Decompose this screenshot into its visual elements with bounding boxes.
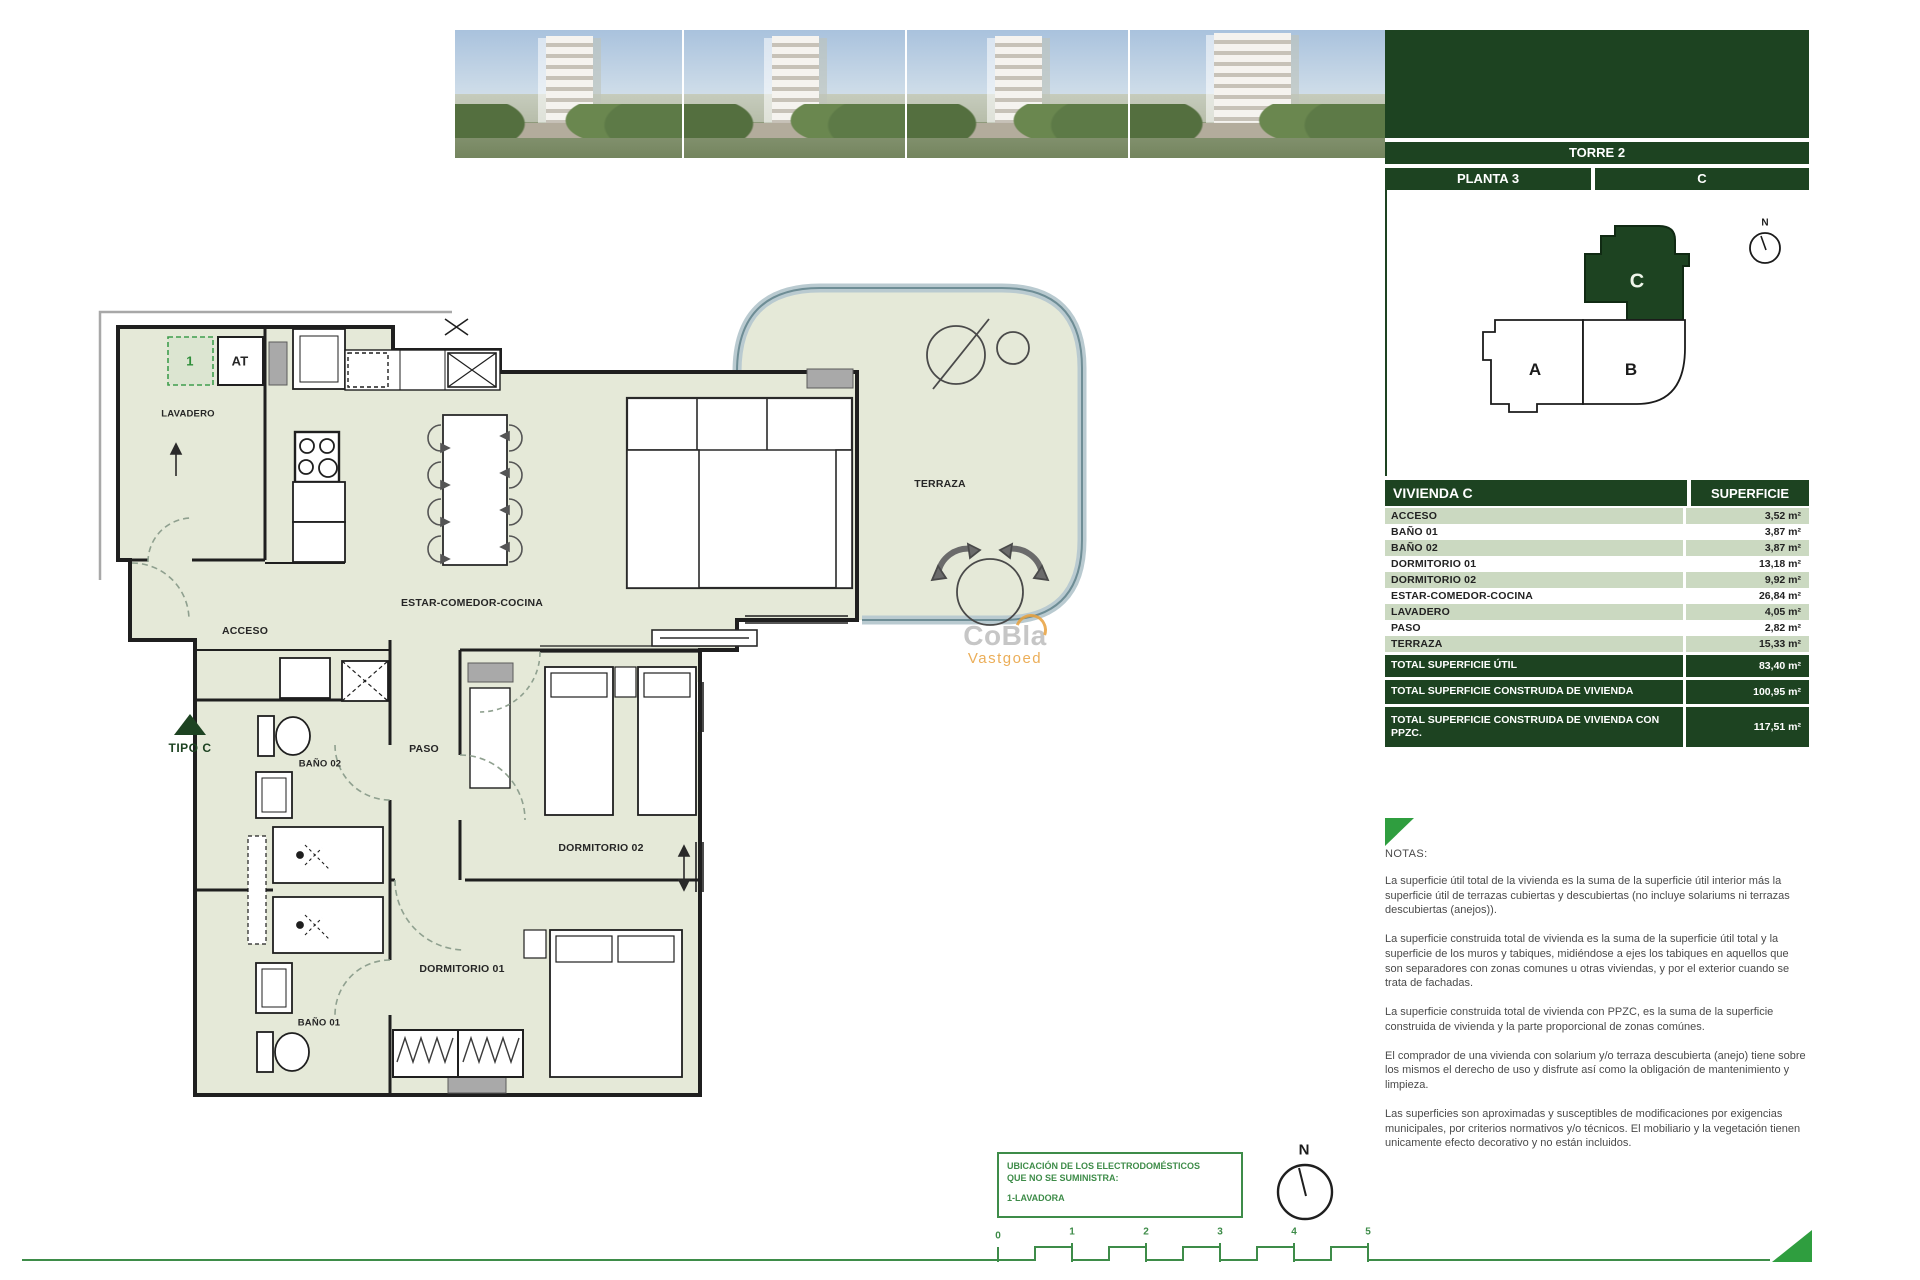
notes-paragraph: Las superficies son aproximadas y suscep… <box>1385 1107 1809 1151</box>
render-photo-3 <box>907 30 1128 158</box>
room-label-paso: PASO <box>409 743 439 755</box>
tower-bar: TORRE 2 <box>1385 142 1809 164</box>
floor-label: PLANTA 3 <box>1457 171 1519 186</box>
keyplan-north-label: N <box>1761 218 1768 229</box>
unit-label: C <box>1697 171 1706 186</box>
unit-bar: C <box>1595 168 1809 190</box>
notes-paragraph: El comprador de una vivienda con solariu… <box>1385 1049 1809 1093</box>
table-row: PASO2,82 m² <box>1385 620 1809 636</box>
scale-tick-label: 2 <box>1143 1227 1149 1238</box>
legend-line1: UBICACIÓN DE LOS ELECTRODOMÉSTICOS QUE N… <box>1007 1161 1217 1184</box>
surface-table-header: VIVIENDA C SUPERFICIE <box>1385 480 1809 506</box>
table-row: BAÑO 023,87 m² <box>1385 540 1809 556</box>
keyplan-box: C A B N <box>1385 190 1811 476</box>
room-label-dorm02: DORMITORIO 02 <box>558 842 643 854</box>
room-label-estar: ESTAR-COMEDOR-COCINA <box>401 597 543 609</box>
tv-bench <box>652 630 757 646</box>
notes-paragraph: La superficie útil total de la vivienda … <box>1385 874 1809 918</box>
dining-table <box>443 415 507 565</box>
room-label-dorm01: DORMITORIO 01 <box>419 963 504 975</box>
table-total-row: TOTAL SUPERFICIE CONSTRUIDA DE VIVIENDA … <box>1385 707 1809 747</box>
scale-tick-label: 1 <box>1069 1227 1075 1238</box>
legend-line2: 1-LAVADORA <box>1007 1193 1233 1203</box>
scale-tick-label: 4 <box>1291 1227 1297 1238</box>
floorplan-sheet: TORRE 2 PLANTA 3 C C A B N VIVIENDA C SU… <box>0 0 1920 1280</box>
washer-number-label: 1 <box>186 354 193 369</box>
keyplan-letter-a: A <box>1529 360 1541 380</box>
table-row: ESTAR-COMEDOR-COCINA26,84 m² <box>1385 588 1809 604</box>
scale-tick-label: 3 <box>1217 1227 1223 1238</box>
scale-tick-label: 5 <box>1365 1227 1371 1238</box>
room-label-terraza: TERRAZA <box>914 478 966 490</box>
table-row: DORMITORIO 0113,18 m² <box>1385 556 1809 572</box>
floor-bar: PLANTA 3 <box>1385 168 1591 190</box>
notes-title: NOTAS: <box>1385 848 1809 860</box>
plan-north-label: N <box>1299 1142 1310 1159</box>
watermark-line2: Vastgoed <box>935 650 1075 667</box>
sofa <box>627 398 852 588</box>
table-header-name: VIVIENDA C <box>1385 480 1687 506</box>
surface-table: VIVIENDA C SUPERFICIE ACCESO3,52 m² BAÑO… <box>1385 480 1809 747</box>
at-label: AT <box>232 354 249 369</box>
notes-section: NOTAS: La superficie útil total de la vi… <box>1385 848 1809 1151</box>
developer-watermark: CoBla Vastgoed <box>935 620 1075 667</box>
table-total-row: TOTAL SUPERFICIE CONSTRUIDA DE VIVIENDA … <box>1385 680 1809 704</box>
notes-triangle <box>1385 818 1414 846</box>
tipo-c-label: TIPO C <box>168 741 211 755</box>
table-row: DORMITORIO 029,92 m² <box>1385 572 1809 588</box>
vent-x-icon <box>445 319 468 335</box>
wardrobe <box>393 1030 523 1077</box>
table-row: TERRAZA15,33 m² <box>1385 636 1809 652</box>
room-label-lavadero: LAVADERO <box>161 409 215 420</box>
notes-paragraph: La superficie construida total de vivien… <box>1385 932 1809 991</box>
panel-top-block <box>1385 30 1809 138</box>
keyplan-drawing <box>1387 190 1811 476</box>
scale-tick-label: 0 <box>995 1231 1001 1242</box>
table-row: LAVADERO4,05 m² <box>1385 604 1809 620</box>
render-photo-2 <box>684 30 905 158</box>
table-header-value: SUPERFICIE <box>1691 480 1809 506</box>
room-label-bano01: BAÑO 01 <box>298 1018 341 1029</box>
watermark-line1: CoBla <box>935 620 1075 652</box>
appliance-legend-box: UBICACIÓN DE LOS ELECTRODOMÉSTICOS QUE N… <box>997 1152 1243 1218</box>
keyplan-letter-c: C <box>1630 271 1644 294</box>
room-label-bano02: BAÑO 02 <box>299 759 342 770</box>
tower-label: TORRE 2 <box>1569 145 1625 160</box>
scale-bar <box>22 1243 1770 1262</box>
notes-paragraph: La superficie construida total de vivien… <box>1385 1005 1809 1034</box>
table-total-row: TOTAL SUPERFICIE ÚTIL 83,40 m² <box>1385 655 1809 677</box>
table-row: BAÑO 013,87 m² <box>1385 524 1809 540</box>
corner-triangle <box>1772 1230 1812 1262</box>
render-photo-4 <box>1130 30 1385 158</box>
render-photo-1 <box>455 30 682 158</box>
room-label-acceso: ACCESO <box>222 625 268 637</box>
keyplan-letter-b: B <box>1625 360 1637 380</box>
north-compass-icon <box>1278 1165 1332 1219</box>
table-row: ACCESO3,52 m² <box>1385 508 1809 524</box>
